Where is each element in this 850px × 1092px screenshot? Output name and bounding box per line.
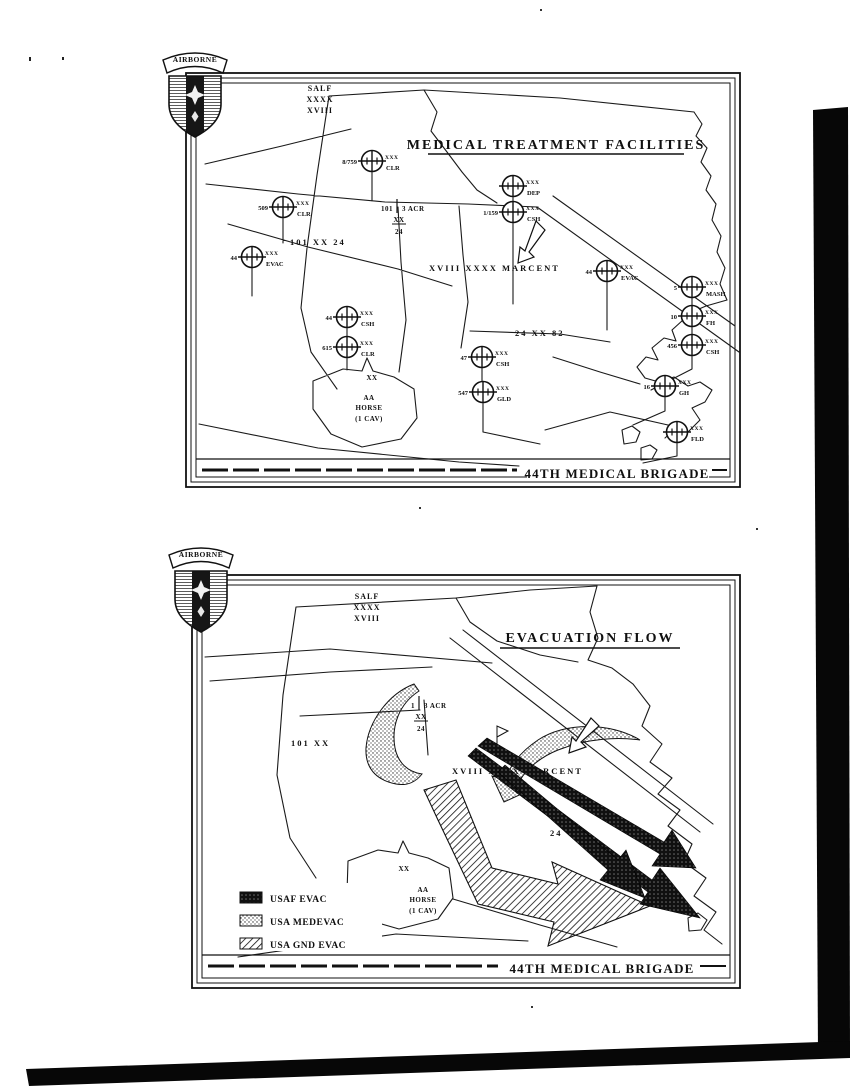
scan-speck [29, 57, 31, 61]
facility-echelon: XXX [496, 386, 509, 392]
medical-facility-symbol: 5 XXX MASH [674, 277, 726, 299]
medical-facility-symbol: XXX DEP [499, 176, 540, 198]
facility-type: CSH [496, 361, 509, 368]
map1-corps-boundary-label: 101 XX 24 [290, 237, 346, 247]
boundary-line2: XXXX [353, 603, 380, 612]
scan-speck [419, 507, 421, 509]
facility-type: EVAC [266, 261, 284, 268]
medical-facility-symbol: 44 XXX EVAC [586, 261, 639, 283]
facility-number: 47 [461, 355, 468, 362]
facility-type: FLD [691, 436, 704, 443]
map2-assembly-area-horse-label: AA HORSE (1 CAV) [409, 886, 437, 915]
map2-boundary-label-salf: SALF XXXX XVIII [353, 592, 380, 623]
map1-marcent-label: XVIII XXXX MARCENT [429, 263, 560, 273]
acr-right-unit: 3 ACR [402, 205, 425, 213]
boundary-line3: XVIII [307, 106, 333, 115]
facility-number: 547 [458, 390, 469, 397]
scan-bar-right [813, 107, 850, 1056]
facility-type: CLR [386, 165, 400, 172]
scan-bar-bottom [26, 1041, 850, 1086]
medical-facility-symbol: 547 XXX GLD [458, 382, 511, 404]
facility-number: 1/159 [483, 210, 499, 217]
acr-division: 24 [395, 228, 403, 236]
usa-medevac-arrow [366, 684, 422, 785]
facility-type: GH [679, 390, 689, 397]
acr-division: 24 [417, 725, 425, 733]
acr-echelon: XX [393, 216, 404, 224]
facility-number: 456 [667, 343, 678, 350]
boundary-line2: XXXX [306, 95, 333, 104]
facility-type: CSH [527, 216, 540, 223]
facility-echelon: XXX [385, 155, 398, 161]
facility-type: CLR [297, 211, 311, 218]
facility-number: 44 [326, 315, 333, 322]
medical-facility-symbol: 44 XXX EVAC [231, 247, 284, 269]
map1-acr-boundary-label: 101 3 ACR XX 24 [381, 199, 425, 236]
acr-left-unit: 1 [411, 702, 415, 710]
facility-type: EVAC [621, 275, 639, 282]
airborne-shield-logo [169, 548, 233, 633]
medical-facility-symbol: 8/759 XXX CLR [342, 151, 400, 173]
svg-text:HORSE: HORSE [355, 404, 382, 412]
facility-echelon: XXX [265, 251, 278, 257]
facility-echelon: XXX [360, 311, 373, 317]
legend-swatch-usaf-evac [240, 892, 262, 903]
map1-div-boundary-label: 24 XX 82 [515, 328, 565, 338]
boundary-line3: XVIII [354, 614, 380, 623]
legend-label: USA MEDEVAC [270, 918, 344, 928]
map1-title: MEDICAL TREATMENT FACILITIES [407, 138, 705, 153]
facility-echelon: XXX [678, 380, 691, 386]
scanned-document-page: AIRBORNE MEDICAL TREATMENT FACILITIES SA… [0, 0, 850, 1092]
map1-xx-label: XX [366, 374, 377, 382]
map2-legend: USAF EVAC USA MEDEVAC USA GND EVAC [230, 883, 382, 951]
facility-number: 509 [258, 205, 269, 212]
map1-footer-title: 44TH MEDICAL BRIGADE [524, 466, 709, 481]
legend-label: USA GND EVAC [270, 941, 346, 951]
facility-echelon: XXX [360, 341, 373, 347]
map2-corps-boundary-label: 101 XX [291, 738, 330, 748]
facility-echelon: XXX [705, 339, 718, 345]
facility-type: CSH [706, 349, 719, 356]
airborne-shield-logo [163, 53, 227, 138]
facility-number: 44 [231, 255, 238, 262]
map2-xx-label: XX [398, 865, 409, 873]
svg-text:AA: AA [417, 886, 428, 894]
scan-speck [531, 1006, 533, 1008]
facility-echelon: XXX [690, 426, 703, 432]
map1-boundary-label-salf: SALF XXXX XVIII [306, 84, 333, 115]
map2-div-label: 24 [550, 828, 563, 838]
scan-speck [540, 9, 542, 11]
map2-footer-title: 44TH MEDICAL BRIGADE [509, 961, 694, 976]
facility-type: DEP [527, 190, 540, 197]
facility-type: CSH [361, 321, 374, 328]
svg-text:AA: AA [363, 394, 374, 402]
facility-number: 8/759 [342, 159, 358, 166]
facility-echelon: XXX [495, 351, 508, 357]
facility-number: 10 [671, 314, 678, 321]
medical-facility-symbol: 615 XXX CLR [322, 337, 375, 359]
map1-assembly-area-horse-label: AA HORSE (1 CAV) [355, 394, 383, 423]
scan-artifacts [26, 9, 850, 1086]
page-canvas: AIRBORNE MEDICAL TREATMENT FACILITIES SA… [0, 0, 850, 1092]
medical-facility-symbol: 47 XXX CSH [461, 347, 510, 369]
scan-speck [756, 528, 758, 530]
facility-echelon: XXX [620, 265, 633, 271]
facility-type: MASH [706, 291, 726, 298]
legend-label: USAF EVAC [270, 895, 327, 905]
map2-acr-boundary-label: 1 3 ACR XX 24 [411, 696, 447, 733]
facility-type: CLR [361, 351, 375, 358]
svg-text:HORSE: HORSE [409, 896, 436, 904]
legend-swatch-usa-medevac [240, 915, 262, 926]
facility-number: 615 [322, 345, 333, 352]
facility-number: 16 [644, 384, 651, 391]
map2-evacuation-flow: EVACUATION FLOW SALF XXXX XVIII XVIII XX… [169, 548, 740, 988]
map2-footer-banner: 44TH MEDICAL BRIGADE [202, 955, 730, 976]
facility-type: FH [706, 320, 715, 327]
acr-echelon: XX [415, 713, 426, 721]
facility-type: GLD [497, 396, 511, 403]
facility-echelon: XXX [705, 310, 718, 316]
map1-frame [186, 73, 740, 487]
medical-facility-symbol: 44 XXX CSH [326, 307, 375, 329]
map1-medical-treatment-facilities: MEDICAL TREATMENT FACILITIES SALF XXXX X… [163, 53, 740, 487]
medical-facility-symbol: 16 XXX GH [644, 376, 692, 398]
medical-facility-symbol: 509 XXX CLR [258, 197, 311, 219]
acr-left-unit: 101 [381, 205, 393, 213]
facility-echelon: XXX [526, 180, 539, 186]
facility-number: 44 [586, 269, 593, 276]
facility-echelon: XXX [526, 206, 539, 212]
map2-title: EVACUATION FLOW [505, 631, 674, 646]
svg-text:(1 CAV): (1 CAV) [409, 907, 437, 915]
scan-speck [62, 57, 64, 60]
legend-swatch-usa-gnd-evac [240, 938, 262, 949]
outline-arrow-icon [518, 221, 545, 263]
medical-facility-symbol: XXX FLD [663, 422, 704, 444]
facility-echelon: XXX [705, 281, 718, 287]
svg-text:(1 CAV): (1 CAV) [355, 415, 383, 423]
facility-number: 5 [674, 285, 678, 292]
boundary-line1: SALF [308, 84, 332, 93]
facility-echelon: XXX [296, 201, 309, 207]
acr-right-unit: 3 ACR [424, 702, 447, 710]
boundary-line1: SALF [355, 592, 379, 601]
